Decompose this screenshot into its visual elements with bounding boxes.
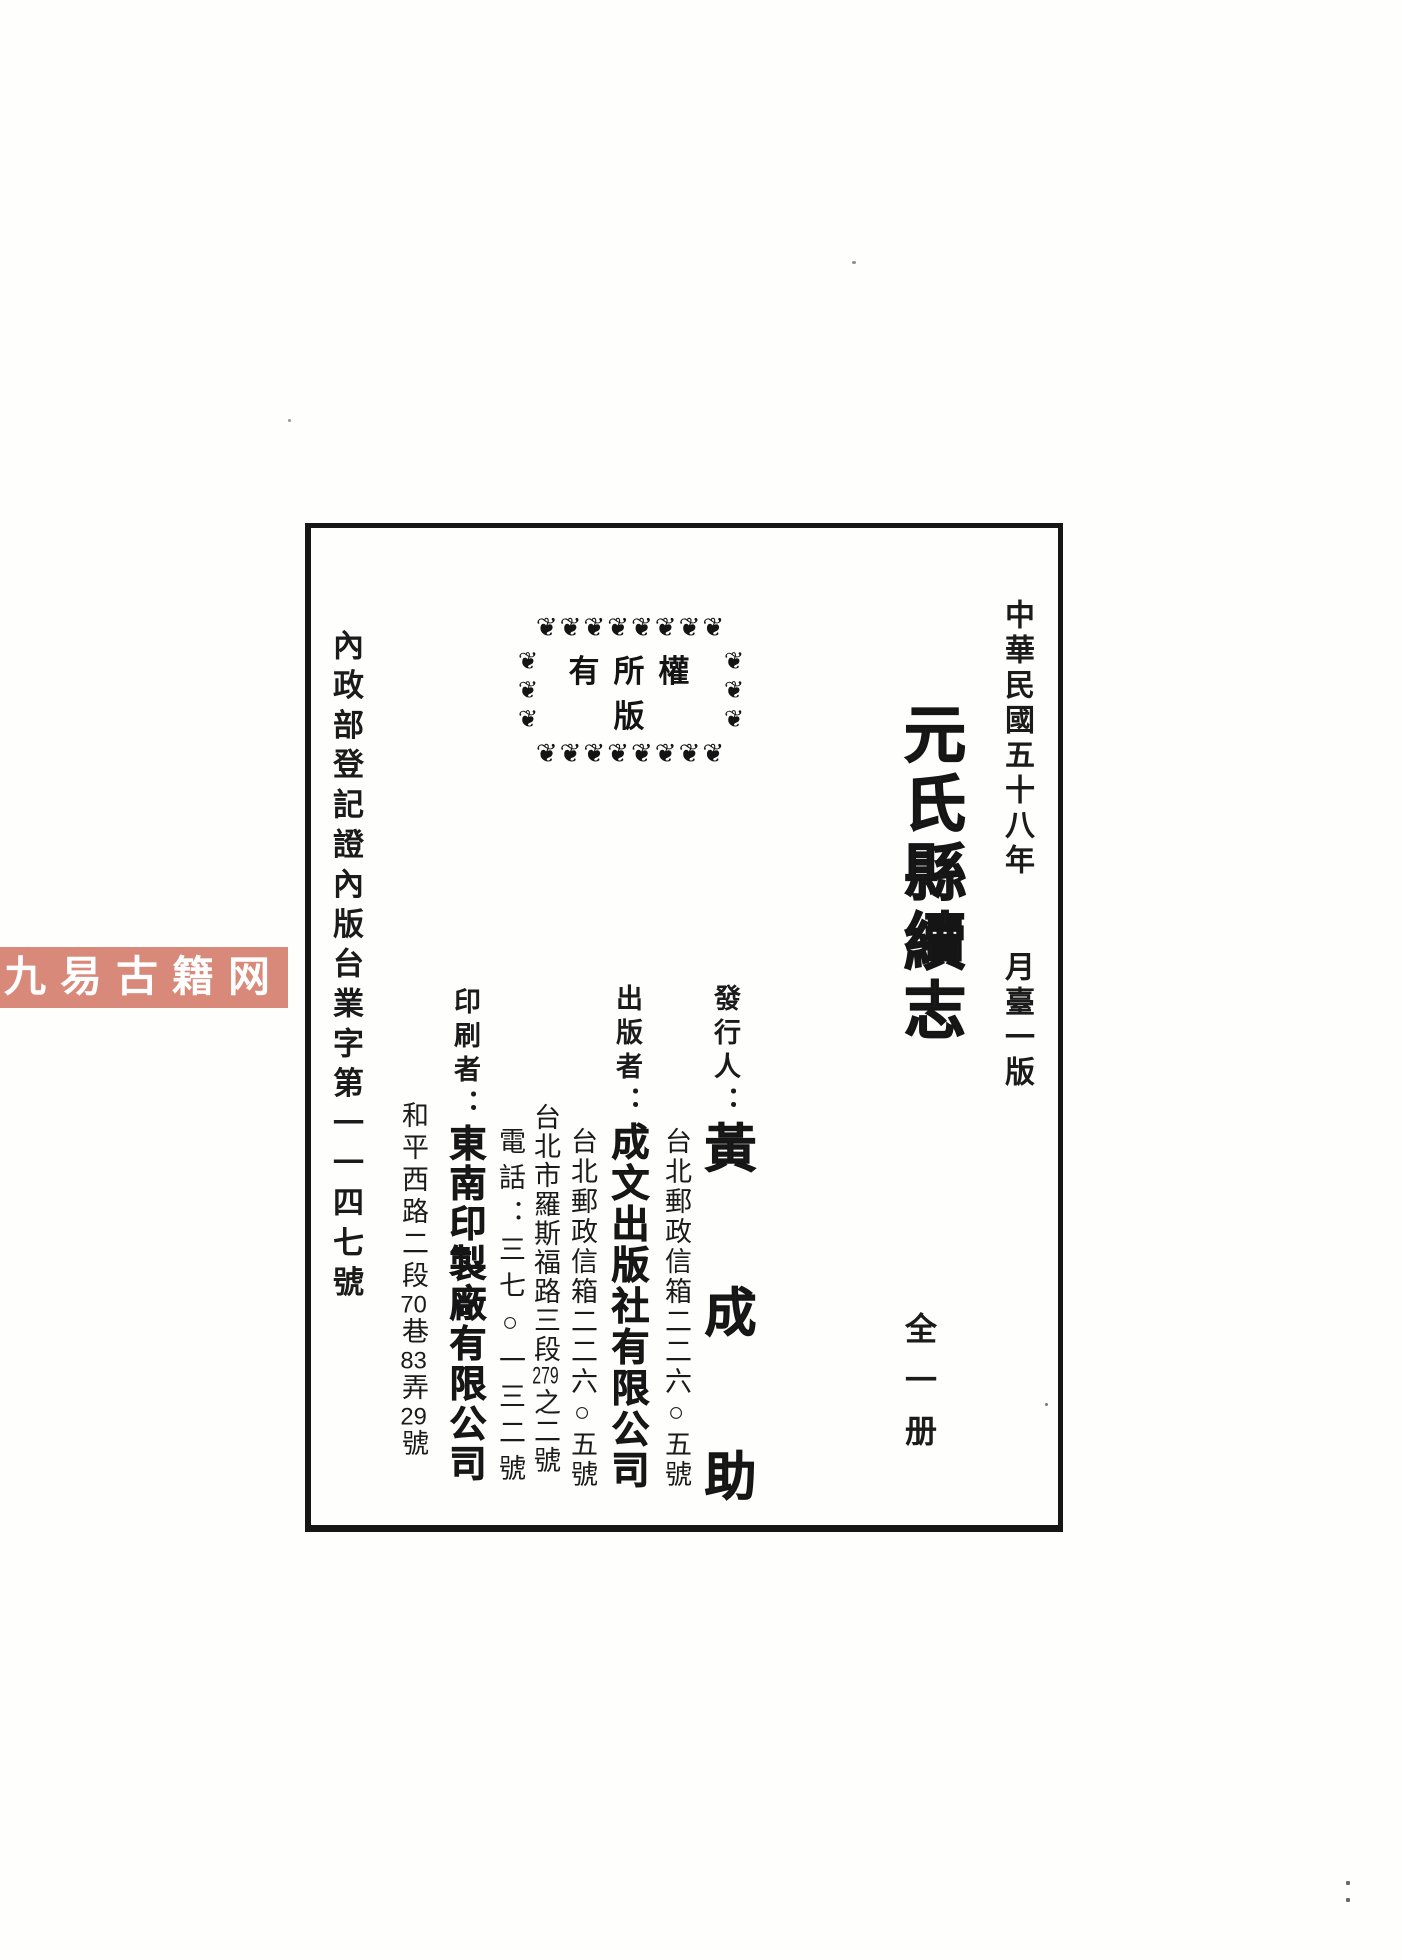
printer-address-post: 號 <box>398 1429 428 1461</box>
printer-address-num3: 29 <box>400 1405 427 1429</box>
stamp-text: 有所權版 <box>545 646 717 736</box>
printer-address-sep1: 巷 <box>398 1317 428 1349</box>
registration-number: 內政部登記證內版台業字第一一四七號 <box>330 629 361 1306</box>
edition-issue-column: 月臺一版 <box>1001 951 1031 1091</box>
scan-colon-mark <box>1346 1881 1350 1885</box>
stamp-ornament-top-icon: ❦❦❦❦❦❦❦❦ <box>511 610 751 646</box>
volume-label: 全一册 <box>903 1312 935 1465</box>
publisher-street-number: 279 <box>532 1364 559 1388</box>
publisher-phone: 電話：三七○一三二號 <box>496 1127 523 1490</box>
publisher-pobox-address: 台北郵政信箱二二六○五號 <box>568 1127 595 1490</box>
scan-speck-1 <box>852 261 856 264</box>
scan-speck-3 <box>1045 1403 1048 1406</box>
issuer-address: 台北郵政信箱二二六○五號 <box>662 1127 689 1490</box>
scan-speck-2 <box>288 419 291 422</box>
colophon-page: 九易古籍网 ❦❦❦❦❦❦❦❦ ❦❦❦ 有所權版 ❦❦❦ ❦❦❦❦❦❦❦❦ 中華民… <box>0 0 1402 1960</box>
watermark-band: 九易古籍网 <box>0 947 288 1008</box>
edition-date-column: 中華民國五十八年 <box>1001 599 1031 879</box>
publisher-street-address: 台北市羅斯福路三段279之二號 <box>531 1103 558 1475</box>
printer-address-num1: 70 <box>400 1293 427 1317</box>
stamp-ornament-right-icon: ❦❦❦ <box>717 647 751 734</box>
publisher-street-pre: 台北市羅斯福路三段 <box>530 1103 560 1364</box>
stamp-ornament-left-icon: ❦❦❦ <box>511 647 545 734</box>
stamp-ornament-bottom-icon: ❦❦❦❦❦❦❦❦ <box>511 736 751 772</box>
printer-address-num2: 83 <box>400 1349 427 1373</box>
printer-address: 和平西路二段70巷83弄29號 <box>399 1101 426 1461</box>
printer-address-sep2: 弄 <box>398 1373 428 1405</box>
publisher-street-post: 之二號 <box>530 1388 560 1475</box>
issuer-name: 黃成助 <box>698 1121 750 1613</box>
watermark-text: 九易古籍网 <box>4 953 284 1000</box>
publisher-name: 成文出版社有限公司 <box>607 1122 645 1491</box>
printer-name: 東南印製廠有限公司 <box>445 1124 482 1484</box>
publisher-label: 出版者： <box>613 984 640 1120</box>
book-title: 元氏縣續志 <box>897 702 959 1047</box>
printer-label: 印刷者： <box>451 987 478 1123</box>
printer-address-pre: 和平西路二段 <box>398 1101 428 1293</box>
issuer-label: 發行人： <box>711 984 738 1120</box>
copyright-stamp: ❦❦❦❦❦❦❦❦ ❦❦❦ 有所權版 ❦❦❦ ❦❦❦❦❦❦❦❦ <box>511 610 751 771</box>
